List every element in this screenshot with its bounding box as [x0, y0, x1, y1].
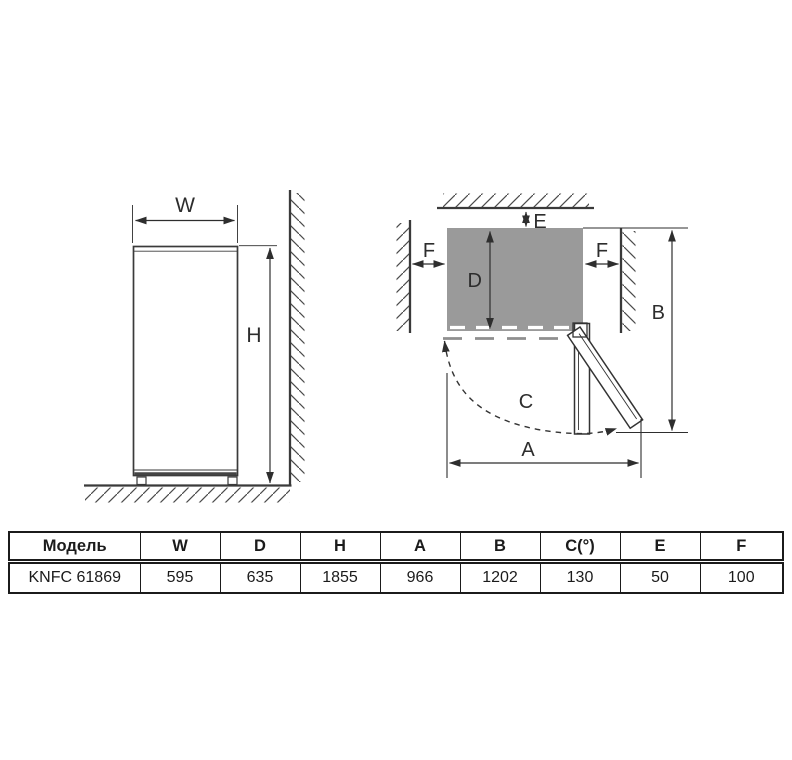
- cell-f: 100: [700, 562, 783, 594]
- floor-hatch: [85, 488, 290, 503]
- dimensions-sheet: W H E: [0, 0, 792, 760]
- label-open-width: A: [521, 439, 535, 461]
- label-side-clearance-right: F: [596, 240, 608, 262]
- cell-b: 1202: [460, 562, 540, 594]
- left-wall-hatch: [397, 223, 410, 331]
- label-depth: D: [468, 270, 482, 292]
- label-width: W: [175, 194, 195, 217]
- header-f: F: [700, 532, 783, 562]
- label-open-depth: B: [652, 302, 665, 324]
- label-height: H: [246, 324, 261, 347]
- fridge-front-outline: [134, 247, 238, 485]
- rear-wall-hatch: [443, 194, 589, 208]
- header-w: W: [140, 532, 220, 562]
- top-view: E F F D: [397, 194, 689, 479]
- label-side-clearance-left: F: [423, 240, 435, 262]
- cell-h: 1855: [300, 562, 380, 594]
- header-a: A: [380, 532, 460, 562]
- header-model: Модель: [9, 532, 140, 562]
- table-row: KNFC 61869 595 635 1855 966 1202 130 50 …: [9, 562, 783, 594]
- header-h: H: [300, 532, 380, 562]
- wall-hatch: [291, 193, 305, 482]
- fridge-foot-left: [137, 477, 146, 485]
- header-c: C(°): [540, 532, 620, 562]
- cell-c: 130: [540, 562, 620, 594]
- header-e: E: [620, 532, 700, 562]
- label-door-swing: C: [519, 391, 533, 413]
- right-wall-hatch: [623, 231, 636, 331]
- cell-model: KNFC 61869: [9, 562, 140, 594]
- cell-w: 595: [140, 562, 220, 594]
- installation-diagram: W H E: [0, 0, 792, 520]
- fridge-foot-right: [228, 477, 237, 485]
- height-dimension: [239, 246, 277, 483]
- cell-a: 966: [380, 562, 460, 594]
- table-header-row: Модель W D H A B C(°) E F: [9, 532, 783, 562]
- header-b: B: [460, 532, 540, 562]
- cell-e: 50: [620, 562, 700, 594]
- front-view: W H: [84, 190, 305, 503]
- dimensions-table: Модель W D H A B C(°) E F KNFC 61869 595…: [8, 531, 784, 594]
- label-rear-clearance: E: [533, 211, 546, 233]
- header-d: D: [220, 532, 300, 562]
- cell-d: 635: [220, 562, 300, 594]
